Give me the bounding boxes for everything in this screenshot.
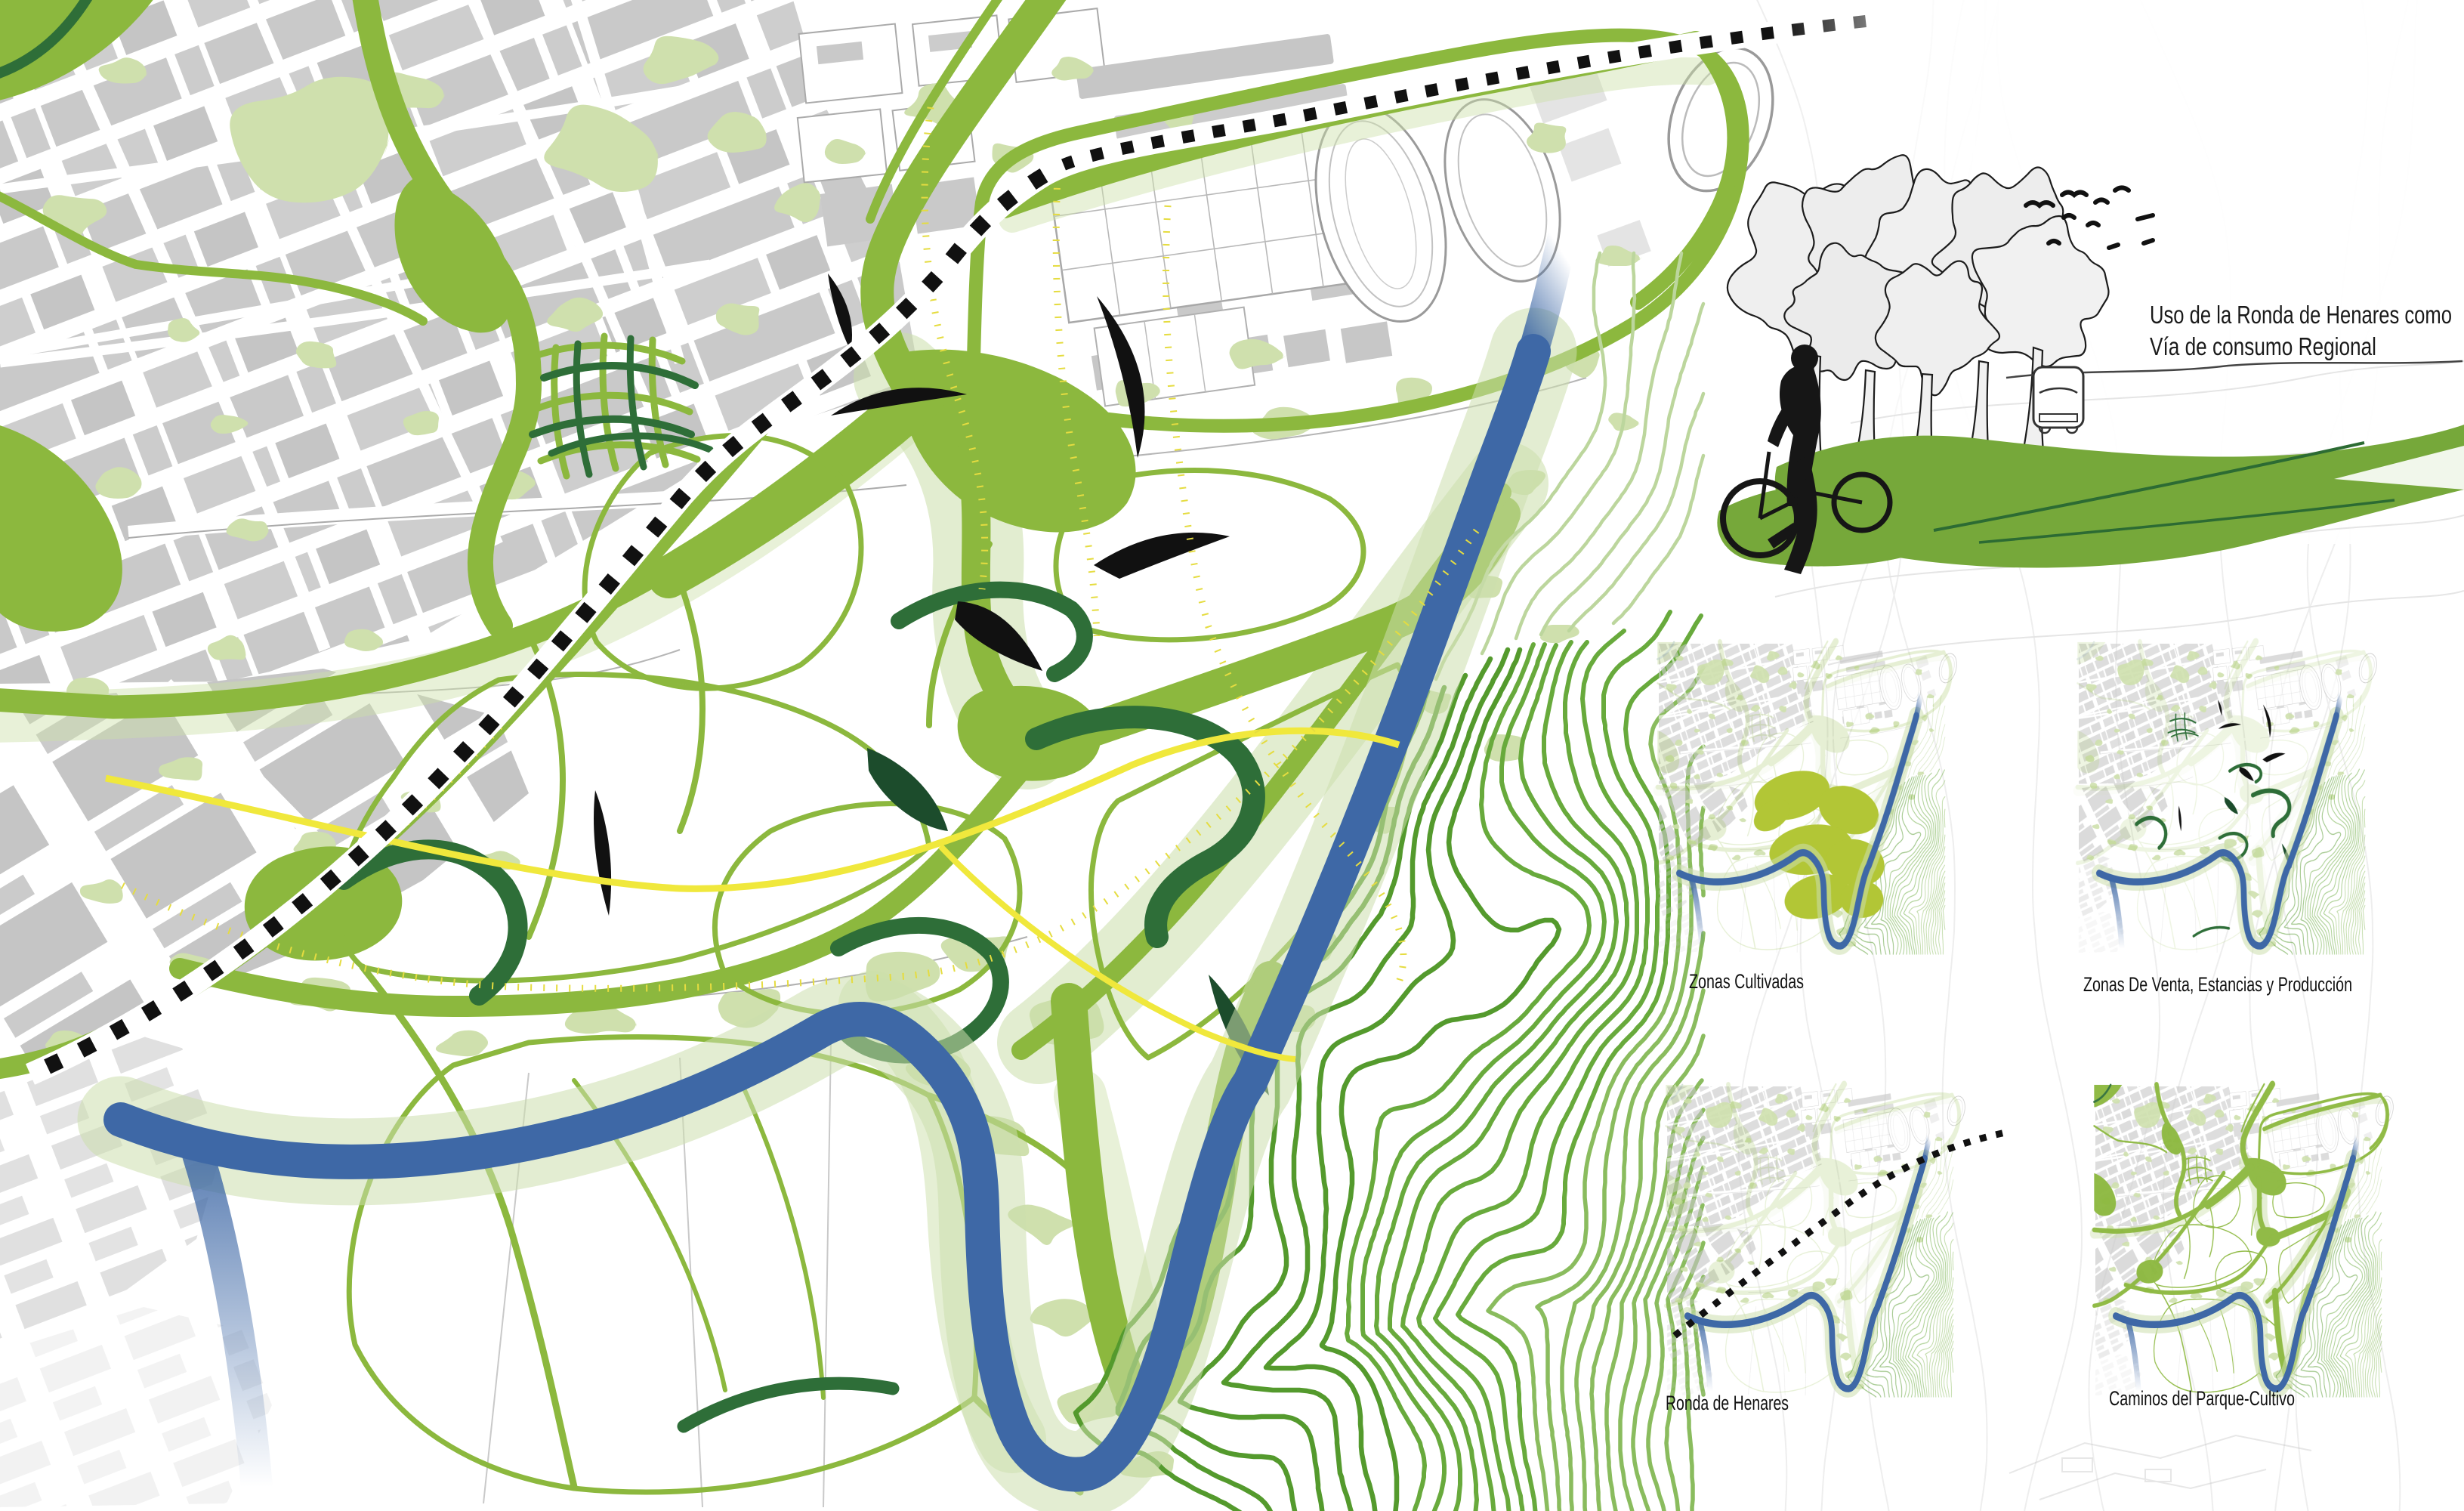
svg-text:Caminos del Parque-Cultivo: Caminos del Parque-Cultivo xyxy=(2109,1387,2295,1410)
svg-text:Uso de la Ronda de Henares com: Uso de la Ronda de Henares como xyxy=(2150,301,2452,329)
svg-text:Zonas De Venta, Estancias y P: Zonas De Venta, Estancias y Producción xyxy=(2083,973,2352,996)
svg-text:Vía de consumo Regional: Vía de consumo Regional xyxy=(2150,332,2376,360)
svg-text:Ronda de Henares: Ronda de Henares xyxy=(1666,1392,1789,1414)
svg-text:Zonas Cultivadas: Zonas Cultivadas xyxy=(1689,970,1804,993)
